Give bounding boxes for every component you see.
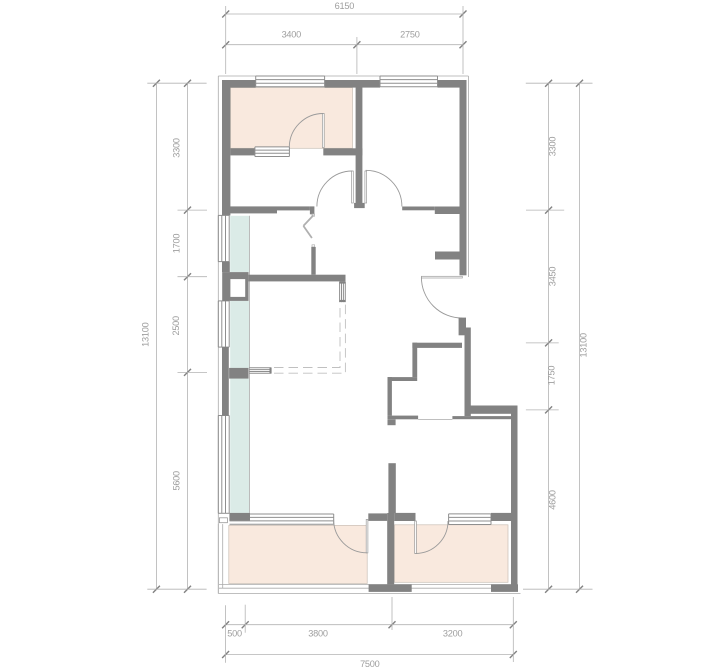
svg-text:3300: 3300	[548, 137, 558, 157]
svg-text:1700: 1700	[172, 234, 182, 254]
svg-text:3200: 3200	[443, 629, 463, 639]
svg-text:13100: 13100	[578, 333, 588, 357]
svg-text:3400: 3400	[282, 30, 302, 40]
svg-text:500: 500	[227, 629, 242, 639]
svg-text:6150: 6150	[335, 1, 355, 11]
svg-text:4600: 4600	[548, 490, 558, 510]
svg-text:3300: 3300	[172, 138, 182, 158]
svg-text:7500: 7500	[360, 659, 380, 669]
svg-text:3450: 3450	[548, 267, 558, 287]
svg-text:1750: 1750	[547, 366, 557, 386]
svg-text:2500: 2500	[171, 316, 181, 336]
svg-text:13100: 13100	[141, 322, 151, 346]
svg-text:5600: 5600	[172, 471, 182, 491]
svg-text:2750: 2750	[400, 30, 420, 40]
svg-text:3800: 3800	[308, 629, 328, 639]
